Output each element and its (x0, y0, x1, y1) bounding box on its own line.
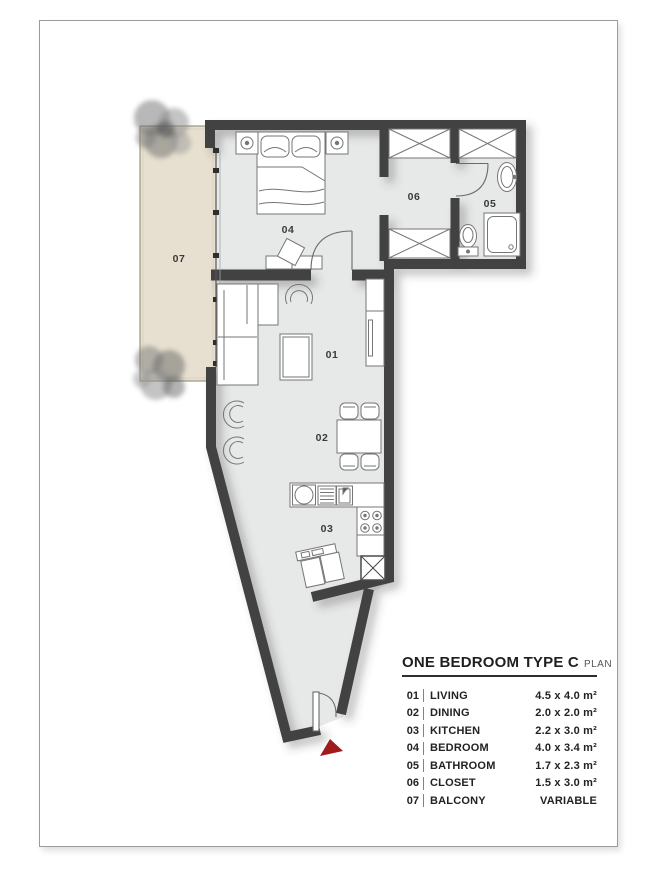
legend-size: 2.2 x 3.0 m² (535, 725, 597, 737)
sink-icon (498, 163, 517, 192)
room-label-bedroom: 04 (282, 224, 295, 236)
legend-name: BATHROOM (430, 760, 496, 772)
kitchen-counter (290, 483, 384, 507)
legend-size: 1.5 x 3.0 m² (535, 777, 597, 789)
legend-num: 02 (402, 707, 419, 719)
legend-name: KITCHEN (430, 725, 480, 737)
legend-row: 07 BALCONY VARIABLE (402, 792, 597, 810)
legend: ONE BEDROOM TYPE CPLAN 01 LIVING 4.5 x 4… (402, 654, 597, 810)
legend-num: 05 (402, 760, 419, 772)
bed (257, 132, 325, 214)
legend-row: 03 KITCHEN 2.2 x 3.0 m² (402, 722, 597, 740)
coffee-table (280, 334, 312, 380)
tree-icon (133, 346, 185, 400)
nightstand (326, 132, 348, 154)
legend-size: 2.0 x 2.0 m² (535, 707, 597, 719)
legend-size: 4.0 x 3.4 m² (535, 742, 597, 754)
legend-num: 06 (402, 777, 419, 789)
legend-num: 03 (402, 725, 419, 737)
legend-name: BALCONY (430, 795, 486, 807)
legend-size: 4.5 x 4.0 m² (535, 690, 597, 702)
room-label-bathroom: 05 (484, 198, 497, 210)
room-label-balcony: 07 (173, 253, 186, 265)
legend-divider (423, 707, 424, 720)
bathroom-cabinet (459, 129, 516, 158)
legend-size: VARIABLE (540, 795, 597, 807)
nightstand (236, 132, 258, 154)
shaft-icon (361, 556, 385, 580)
floor-plan-page: { "legend": { "title": "ONE BEDROOM TYPE… (0, 0, 668, 872)
room-label-kitchen: 03 (321, 523, 334, 535)
legend-title-text: ONE BEDROOM TYPE C (402, 654, 579, 671)
legend-divider (423, 724, 424, 737)
legend-divider (423, 742, 424, 755)
legend-rule (402, 675, 597, 677)
legend-num: 01 (402, 690, 419, 702)
shower-icon (484, 213, 520, 256)
cooktop-icon (357, 507, 384, 556)
legend-title-suffix: PLAN (584, 659, 612, 670)
room-label-closet: 06 (408, 191, 421, 203)
wardrobe (389, 129, 450, 158)
legend-title: ONE BEDROOM TYPE CPLAN (402, 654, 597, 671)
legend-divider (423, 689, 424, 702)
legend-row: 04 BEDROOM 4.0 x 3.4 m² (402, 740, 597, 758)
room-label-living: 01 (326, 349, 339, 361)
legend-size: 1.7 x 2.3 m² (535, 760, 597, 772)
legend-row: 02 DINING 2.0 x 2.0 m² (402, 705, 597, 723)
legend-divider (423, 794, 424, 807)
legend-name: CLOSET (430, 777, 476, 789)
legend-row: 06 CLOSET 1.5 x 3.0 m² (402, 775, 597, 793)
legend-row: 05 BATHROOM 1.7 x 2.3 m² (402, 757, 597, 775)
legend-divider (423, 777, 424, 790)
tv-unit (366, 279, 384, 366)
legend-divider (423, 759, 424, 772)
legend-num: 04 (402, 742, 419, 754)
legend-name: LIVING (430, 690, 468, 702)
room-label-dining: 02 (316, 432, 329, 444)
legend-name: BEDROOM (430, 742, 489, 754)
wardrobe (389, 229, 450, 258)
legend-num: 07 (402, 795, 419, 807)
legend-name: DINING (430, 707, 470, 719)
entry-arrow-icon (320, 739, 343, 756)
legend-row: 01 LIVING 4.5 x 4.0 m² (402, 687, 597, 705)
toilet-icon (458, 225, 478, 257)
